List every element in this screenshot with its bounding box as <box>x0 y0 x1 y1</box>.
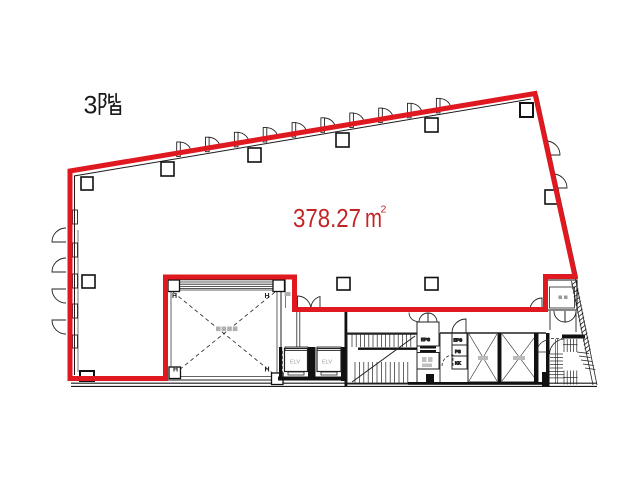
svg-text:EPS: EPS <box>454 338 463 343</box>
svg-text:m: m <box>365 205 382 233</box>
svg-text:H: H <box>173 367 178 374</box>
svg-text:H: H <box>172 293 177 300</box>
svg-text:378.27: 378.27 <box>293 205 361 233</box>
svg-text:ELV: ELV <box>290 360 300 366</box>
svg-text:PS: PS <box>455 349 461 354</box>
svg-text:ELV: ELV <box>322 360 332 366</box>
svg-text:3: 3 <box>84 91 98 119</box>
svg-text:EPS: EPS <box>421 337 430 342</box>
svg-text:H: H <box>265 293 270 300</box>
svg-text:H: H <box>265 367 270 374</box>
svg-text:KK: KK <box>455 361 461 366</box>
svg-text:2: 2 <box>381 204 387 216</box>
